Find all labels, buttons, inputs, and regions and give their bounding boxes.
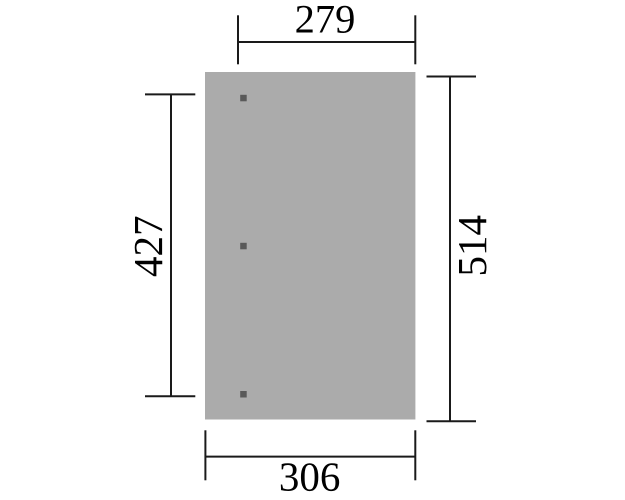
svg-text:427: 427 [125, 216, 171, 277]
svg-text:279: 279 [295, 0, 356, 42]
svg-text:306: 306 [279, 454, 341, 500]
svg-text:514: 514 [449, 215, 495, 277]
